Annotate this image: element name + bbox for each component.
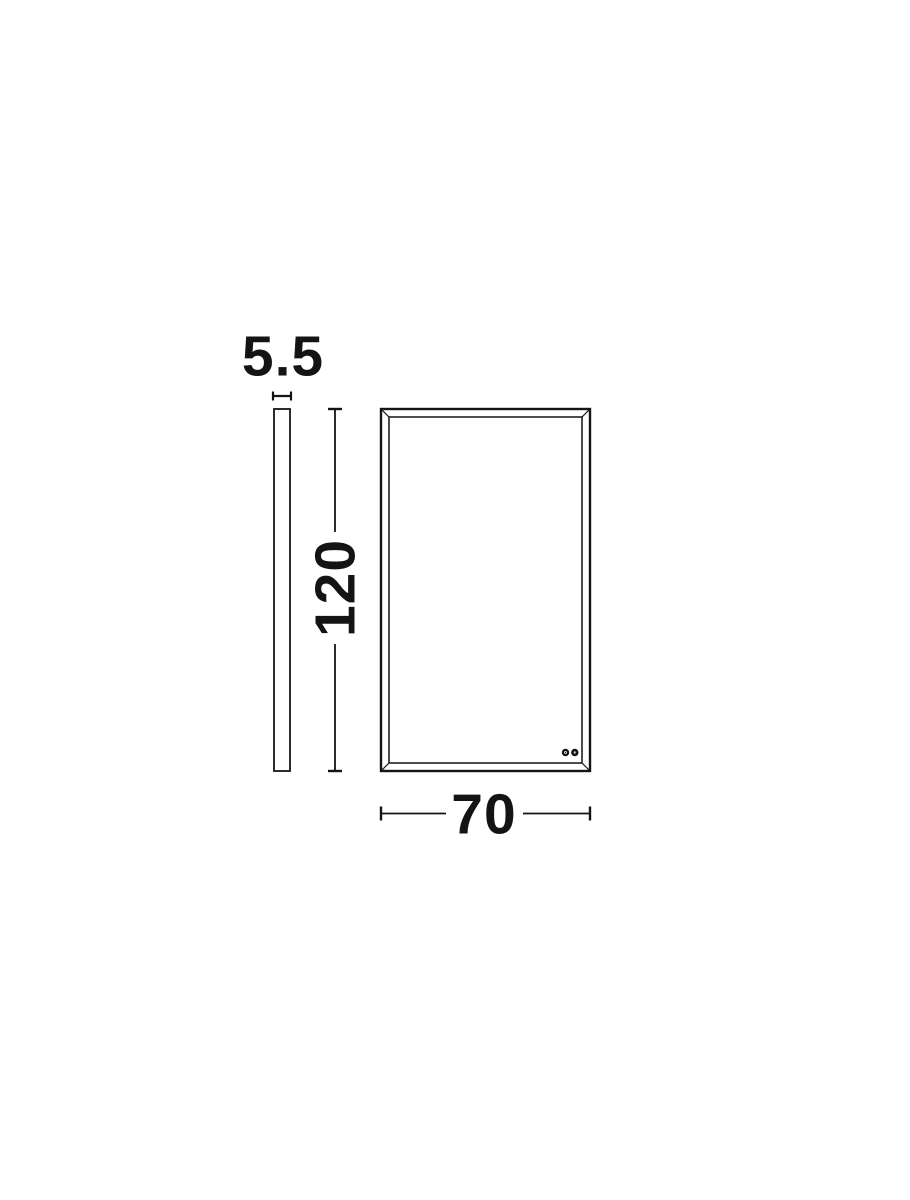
touch-button-left-icon (562, 749, 569, 756)
width-dimension-label: 70 (447, 787, 520, 844)
touch-button-right-icon (571, 749, 578, 756)
height-dimension-label: 120 (308, 535, 365, 641)
side-profile-outline (274, 409, 290, 771)
front-view (381, 409, 590, 771)
technical-drawing-canvas: 5.5 120 70 (0, 0, 910, 1200)
side-profile-view (274, 409, 290, 771)
front-view-inner-frame (389, 417, 582, 763)
thickness-dimension-line (273, 392, 291, 401)
mirror-dimension-diagram (0, 0, 910, 1200)
thickness-dimension-label: 5.5 (238, 329, 328, 386)
